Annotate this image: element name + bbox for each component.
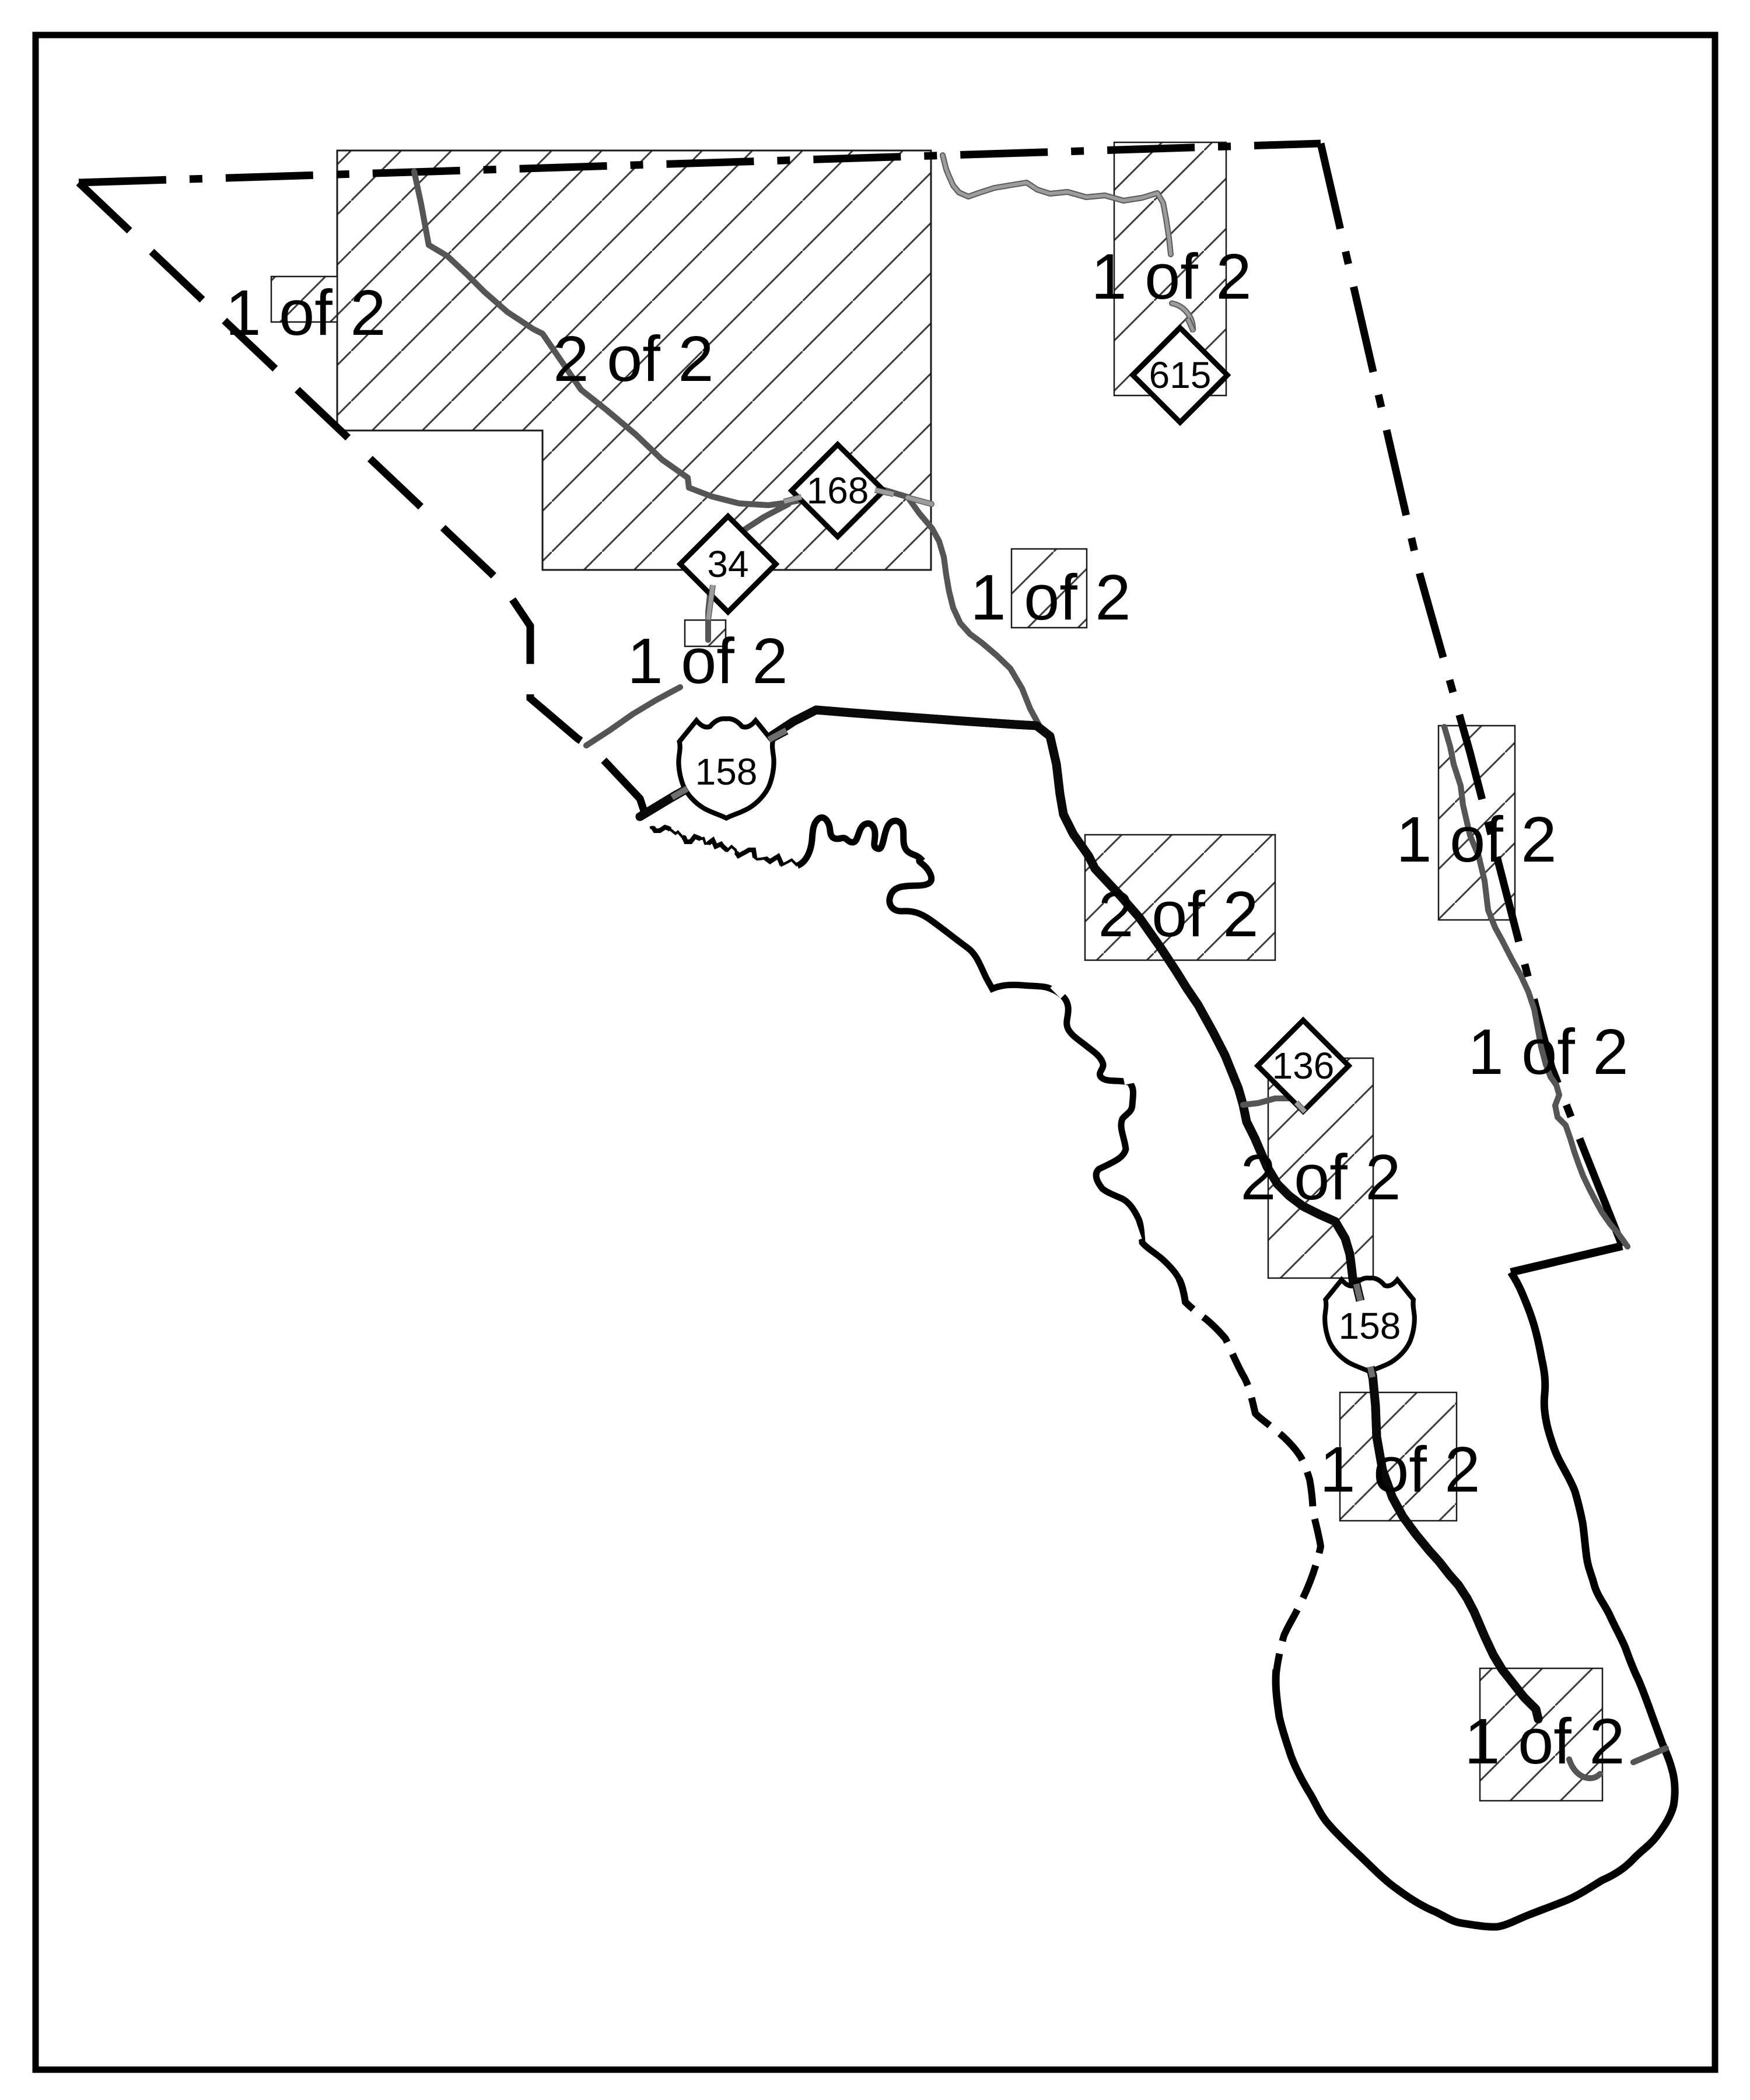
svg-text:1 of 2: 1 of 2 xyxy=(1396,804,1556,876)
svg-text:615: 615 xyxy=(1149,354,1212,396)
svg-text:1 of 2: 1 of 2 xyxy=(627,625,787,697)
svg-text:1 of 2: 1 of 2 xyxy=(970,562,1130,633)
svg-text:158: 158 xyxy=(695,751,758,793)
svg-text:34: 34 xyxy=(707,543,748,585)
svg-text:1 of 2: 1 of 2 xyxy=(1464,1706,1625,1777)
svg-text:168: 168 xyxy=(807,470,869,512)
svg-text:158: 158 xyxy=(1339,1305,1401,1347)
svg-text:1 of 2: 1 of 2 xyxy=(1319,1434,1480,1506)
svg-text:1 of 2: 1 of 2 xyxy=(1468,1016,1628,1088)
svg-text:2 of 2: 2 of 2 xyxy=(1240,1142,1401,1213)
svg-text:136: 136 xyxy=(1272,1045,1335,1087)
svg-text:1 of 2: 1 of 2 xyxy=(1091,241,1251,313)
svg-text:2 of 2: 2 of 2 xyxy=(553,323,713,395)
svg-text:2 of 2: 2 of 2 xyxy=(1098,878,1258,950)
svg-text:1 of 2: 1 of 2 xyxy=(225,277,386,349)
